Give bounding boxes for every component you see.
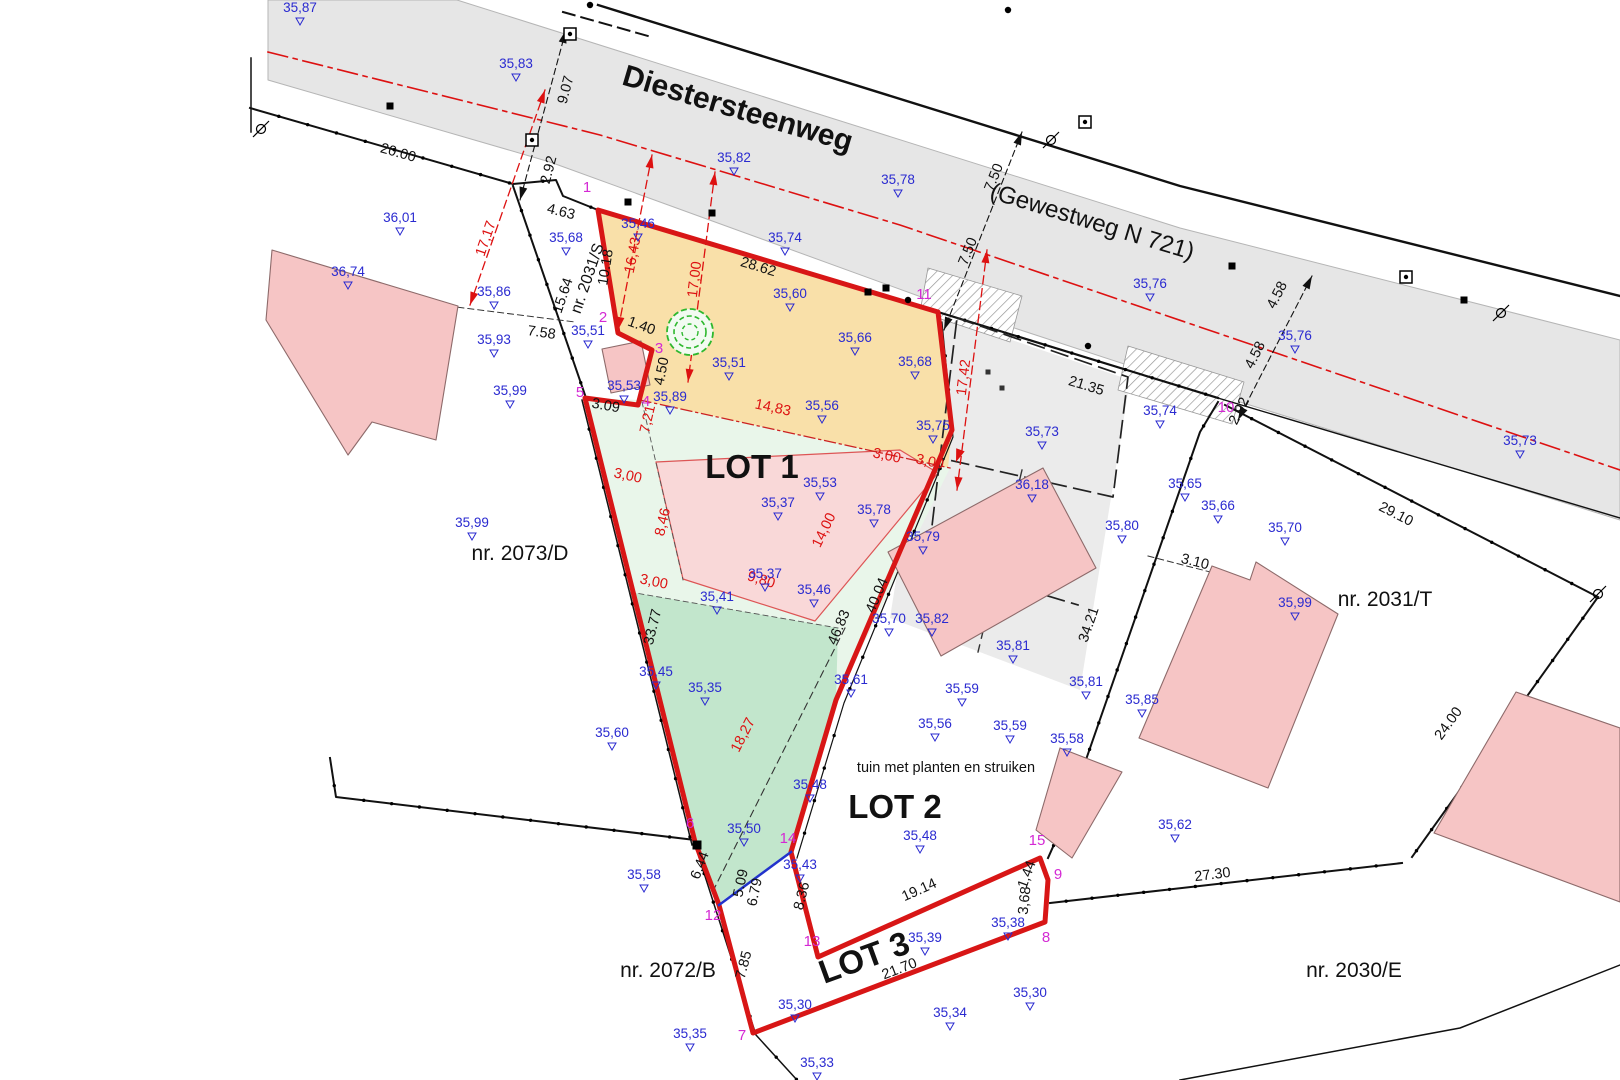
building <box>266 250 458 455</box>
lot-2-label: LOT 2 <box>848 788 942 825</box>
elevation-label: 35,39 <box>908 930 942 945</box>
fence-post-dot <box>1245 879 1248 882</box>
elevation-marker-icon <box>885 629 893 636</box>
utility-pole-icon <box>387 103 394 110</box>
elevation-marker-icon <box>506 401 514 408</box>
elevation-label: 35,37 <box>761 495 795 510</box>
fence-post-dot <box>1551 659 1554 662</box>
fence-post-dot <box>823 766 826 769</box>
elevation-label: 35,37 <box>748 566 782 581</box>
elevation-marker-icon <box>608 743 616 750</box>
fence-post-dot <box>545 283 548 286</box>
fence-post-dot <box>1142 891 1145 894</box>
fence-post-dot <box>1171 510 1174 513</box>
fence-post-dot <box>612 829 615 832</box>
fence-post-dot <box>1116 894 1119 897</box>
dimension-label: 8.36 <box>791 880 813 911</box>
fence-post-dot <box>450 165 453 168</box>
elevation-label: 35,34 <box>933 1005 967 1020</box>
fence-post-dot <box>1204 393 1207 396</box>
elevation-label: 35,48 <box>793 777 827 792</box>
elevation-marker-icon <box>490 302 498 309</box>
survey-dot-icon <box>905 297 911 303</box>
fence-post-dot <box>277 115 280 118</box>
elevation-marker-icon <box>916 846 924 853</box>
curve-point-icon <box>253 121 269 137</box>
elevation-label: 35,60 <box>595 725 629 740</box>
elevation-label: 35,66 <box>1201 498 1235 513</box>
elevation-label: 35,46 <box>621 216 655 231</box>
elevation-marker-icon <box>562 248 570 255</box>
elevation-marker-icon <box>1082 692 1090 699</box>
elevation-label: 35,53 <box>607 378 641 393</box>
fence-post-dot <box>861 656 864 659</box>
elevation-label: 35,59 <box>993 718 1027 733</box>
fence-post-dot <box>1349 867 1352 870</box>
elevation-marker-icon <box>584 341 592 348</box>
elevation-label: 35,68 <box>898 354 932 369</box>
fence-post-dot <box>1517 554 1520 557</box>
elevation-marker-icon <box>640 885 648 892</box>
elevation-label: 35,93 <box>477 332 511 347</box>
elevation-marker-icon <box>490 350 498 357</box>
fence-post-dot <box>306 123 309 126</box>
parcel-label-2072b: nr. 2072/B <box>620 959 716 982</box>
elevation-marker-icon <box>1214 516 1222 523</box>
boundary-point-number: 5 <box>576 384 584 401</box>
dimension-label: 7.85 <box>733 949 756 980</box>
parcel-label-2030e: nr. 2030/E <box>1306 959 1402 982</box>
elevation-label: 35,62 <box>1158 817 1192 832</box>
dimension-label: 20.00 <box>378 140 417 165</box>
boundary-bottom-right <box>1180 965 1620 1080</box>
fence-post-dot <box>589 205 592 208</box>
boundary-point-number: 9 <box>1054 866 1062 883</box>
manhole-icon <box>1404 275 1408 279</box>
survey-dot-icon <box>587 2 593 8</box>
fence-post-dot <box>712 900 715 903</box>
fence-post-dot <box>1271 876 1274 879</box>
fence-post-dot <box>1150 376 1153 379</box>
fence-post-dot <box>1097 360 1100 363</box>
fence-post-dot <box>1566 638 1569 641</box>
fence-post-dot <box>803 831 806 834</box>
elevation-label: 35,53 <box>803 475 837 490</box>
fence-post-dot <box>446 809 449 812</box>
dimension-label: 7.58 <box>526 323 556 343</box>
dimension-label: 3.10 <box>1179 551 1210 573</box>
fence-post-dot <box>1134 615 1137 618</box>
fence-post-dot <box>1323 870 1326 873</box>
fence-post-dot <box>1357 472 1360 475</box>
elevation-marker-icon <box>931 734 939 741</box>
elevation-label: 35,50 <box>727 821 761 836</box>
fence-post-dot <box>1581 616 1584 619</box>
elevation-label: 36,74 <box>331 264 365 279</box>
elevation-label: 35,86 <box>477 284 511 299</box>
elevation-marker-icon <box>468 533 476 540</box>
fence-post-dot <box>1097 721 1100 724</box>
manhole-icon <box>530 138 534 142</box>
boundary-point-number: 8 <box>1042 929 1050 946</box>
small-mark-icon <box>1000 386 1005 391</box>
fence-post-dot <box>501 815 504 818</box>
fence-post-dot <box>1374 864 1377 867</box>
boundary-point-number: 1 <box>583 179 591 196</box>
fence-post-dot <box>1161 536 1164 539</box>
fence-post-dot <box>1194 885 1197 888</box>
fence-post-dot <box>1430 828 1433 831</box>
fence-post-dot <box>1202 424 1205 427</box>
elevation-label: 35,35 <box>673 1026 707 1041</box>
small-mark-icon <box>986 370 991 375</box>
boundary-point-number: 2 <box>599 309 607 326</box>
boundary-point-number: 13 <box>804 933 821 950</box>
elevation-label: 35,78 <box>881 172 915 187</box>
elevation-label: 35,99 <box>455 515 489 530</box>
fence-post-dot <box>1106 695 1109 698</box>
elevation-label: 35,89 <box>653 389 687 404</box>
fence-post-dot <box>1189 457 1192 460</box>
fence-post-dot <box>1410 499 1413 502</box>
boundary-point-number: 12 <box>705 907 722 924</box>
fence-post-dot <box>1277 431 1280 434</box>
fence-post-dot <box>585 825 588 828</box>
fence-post-dot <box>1124 368 1127 371</box>
fence-post-dot <box>1115 668 1118 671</box>
elevation-label: 35,59 <box>945 681 979 696</box>
utility-pole-icon <box>865 289 872 296</box>
fence-post-dot <box>1090 897 1093 900</box>
dimension-label: 4.63 <box>545 201 576 223</box>
elevation-label: 35,30 <box>778 997 812 1012</box>
manhole-icon <box>1083 120 1087 124</box>
fence-post-dot <box>1297 873 1300 876</box>
utility-pole-icon <box>1229 263 1236 270</box>
elevation-label: 35,82 <box>717 150 751 165</box>
elevation-label: 35,51 <box>712 355 746 370</box>
elevation-label: 35,76 <box>1278 328 1312 343</box>
elevation-marker-icon <box>686 1044 694 1051</box>
elevation-marker-icon <box>1171 835 1179 842</box>
elevation-label: 35,82 <box>915 611 949 626</box>
elevation-label: 35,41 <box>700 589 734 604</box>
fence-post-dot <box>537 258 540 261</box>
dimension-arrow <box>520 186 528 200</box>
fence-post-dot <box>473 812 476 815</box>
fence-post-dot <box>1125 642 1128 645</box>
fence-post-dot <box>333 784 336 787</box>
boundary-mark-icon <box>693 841 702 850</box>
fence-post-dot <box>520 209 523 212</box>
fence-post-dot <box>421 156 424 159</box>
fence-post-dot <box>668 835 671 838</box>
elevation-label: 35,43 <box>783 857 817 872</box>
elevation-label: 35,76 <box>1133 276 1167 291</box>
fence-post-dot <box>1303 444 1306 447</box>
elevation-label: 35,45 <box>639 664 673 679</box>
dimension-label: 3,68 <box>1016 886 1035 916</box>
fence-post-dot <box>1177 384 1180 387</box>
fence-post-dot <box>479 173 482 176</box>
elevation-label: 35,56 <box>805 398 839 413</box>
fence-post-dot <box>1152 563 1155 566</box>
fence-post-dot <box>1536 680 1539 683</box>
elevation-marker-icon <box>1138 710 1146 717</box>
elevation-label: 35,61 <box>834 672 868 687</box>
boundary-point-number: 10 <box>1218 399 1235 416</box>
cadastral-plan-canvas: 20.004.632.929.077.507.5028.6210.1815.64… <box>0 0 1620 1080</box>
elevation-label: 35,73 <box>1503 433 1537 448</box>
fence-post-dot <box>1250 417 1253 420</box>
elevation-label: 35,81 <box>1069 674 1103 689</box>
elevation-label: 36,18 <box>1015 477 1049 492</box>
elevation-label: 35,66 <box>838 330 872 345</box>
elevation-marker-icon <box>1026 1003 1034 1010</box>
fence-post-dot <box>335 131 338 134</box>
fence-west <box>330 758 695 840</box>
dimension-label: 19.14 <box>900 876 940 905</box>
fence-post-dot <box>813 799 816 802</box>
elevation-label: 35,78 <box>857 502 891 517</box>
elevation-marker-icon <box>1156 421 1164 428</box>
boundary-point-number: 3 <box>655 340 663 357</box>
elevation-label: 35,33 <box>800 1055 834 1070</box>
elevation-marker-icon <box>921 948 929 955</box>
elevation-label: 36,01 <box>383 210 417 225</box>
fence-post-dot <box>1415 849 1418 852</box>
fence-post-dot <box>1383 486 1386 489</box>
boundary-point-number: 11 <box>916 286 932 303</box>
elevation-marker-icon <box>396 228 404 235</box>
elevation-label: 35,83 <box>499 56 533 71</box>
elevation-label: 35,79 <box>906 529 940 544</box>
elevation-label: 35,80 <box>1105 518 1139 533</box>
fence-post-dot <box>1064 899 1067 902</box>
parcel-label-2073d: nr. 2073/D <box>472 542 569 565</box>
elevation-label: 35,58 <box>627 867 661 882</box>
utility-pole-icon <box>883 285 890 292</box>
fence-post-dot <box>557 822 560 825</box>
fence-post-dot <box>1088 748 1091 751</box>
fence-post-dot <box>528 233 531 236</box>
fence-post-dot <box>1168 888 1171 891</box>
fence-post-dot <box>832 734 835 737</box>
elevation-label: 35,70 <box>1268 520 1302 535</box>
red-dimension-label: 17,17 <box>473 219 500 259</box>
boundary-point-number: 4 <box>642 393 650 410</box>
elevation-label: 35,65 <box>1168 476 1202 491</box>
elevation-label: 35,58 <box>1050 731 1084 746</box>
elevation-marker-icon <box>1118 536 1126 543</box>
fence-post-dot <box>1143 589 1146 592</box>
survey-dot-icon <box>1085 343 1091 349</box>
elevation-label: 35,56 <box>918 716 952 731</box>
boundary-point-number: 15 <box>1029 832 1046 849</box>
elevation-label: 35,68 <box>549 230 583 245</box>
utility-pole-icon <box>625 199 632 206</box>
fence-post-dot <box>1219 882 1222 885</box>
fence-post-dot <box>775 1055 778 1058</box>
garden-note-label: tuin met planten en struiken <box>857 760 1035 776</box>
fence-post-dot <box>418 805 421 808</box>
elevation-label: 35,75 <box>916 418 950 433</box>
elevation-label: 35,70 <box>872 611 906 626</box>
fence-post-dot <box>1437 513 1440 516</box>
elevation-label: 35,85 <box>1125 692 1159 707</box>
fence-post-dot <box>640 832 643 835</box>
elevation-label: 35,35 <box>688 680 722 695</box>
elevation-marker-icon <box>1006 736 1014 743</box>
elevation-label: 35,74 <box>768 230 802 245</box>
elevation-label: 35,99 <box>493 383 527 398</box>
fence-post-dot <box>364 140 367 143</box>
parcel-label-2031t: nr. 2031/T <box>1338 588 1433 611</box>
utility-pole-icon <box>709 210 716 217</box>
building <box>1036 748 1122 858</box>
fence-post-dot <box>529 819 532 822</box>
boundary-point-number: 14 <box>780 830 797 847</box>
boundary-point-number: 7 <box>738 1027 746 1044</box>
fence-post-dot <box>1570 582 1573 585</box>
elevation-label: 35,30 <box>1013 985 1047 1000</box>
fence-post-dot <box>926 498 929 501</box>
fence-post-dot <box>1490 541 1493 544</box>
elevation-label: 35,60 <box>773 286 807 301</box>
cadastral-plan: 20.004.632.929.077.507.5028.6210.1815.64… <box>0 0 1620 1080</box>
dimension-label: 24.00 <box>1432 704 1466 743</box>
elevation-marker-icon <box>958 699 966 706</box>
building <box>1434 692 1620 902</box>
elevation-label: 35,38 <box>991 915 1025 930</box>
utility-pole-icon <box>1461 297 1468 304</box>
elevation-label: 35,73 <box>1025 424 1059 439</box>
elevation-label: 35,74 <box>1143 403 1177 418</box>
elevation-label: 35,46 <box>797 582 831 597</box>
lot-1-label: LOT 1 <box>705 448 799 485</box>
elevation-label: 35,81 <box>996 638 1030 653</box>
elevation-label: 35,99 <box>1278 595 1312 610</box>
survey-dot-icon <box>1005 7 1011 13</box>
boundary-point-number: 6 <box>686 815 694 832</box>
elevation-marker-icon <box>781 248 789 255</box>
fence-post-dot <box>1043 343 1046 346</box>
fence-post-dot <box>887 593 890 596</box>
fence-post-dot <box>1543 568 1546 571</box>
fence-post-dot <box>362 799 365 802</box>
fence-post-dot <box>1463 527 1466 530</box>
fence-post-dot <box>562 332 565 335</box>
elevation-marker-icon <box>1281 538 1289 545</box>
manhole-icon <box>568 32 572 36</box>
fence-post-dot <box>390 802 393 805</box>
fence-post-dot <box>1070 351 1073 354</box>
fence-post-dot <box>571 356 574 359</box>
dimension-label: 29.10 <box>1376 499 1416 530</box>
elevation-label: 35,48 <box>903 828 937 843</box>
elevation-marker-icon <box>946 1023 954 1030</box>
elevation-marker-icon <box>1181 494 1189 501</box>
fence-post-dot <box>508 181 511 184</box>
elevation-marker-icon <box>813 1073 821 1080</box>
fence-post-dot <box>1330 458 1333 461</box>
elevation-label: 35,87 <box>283 0 317 15</box>
